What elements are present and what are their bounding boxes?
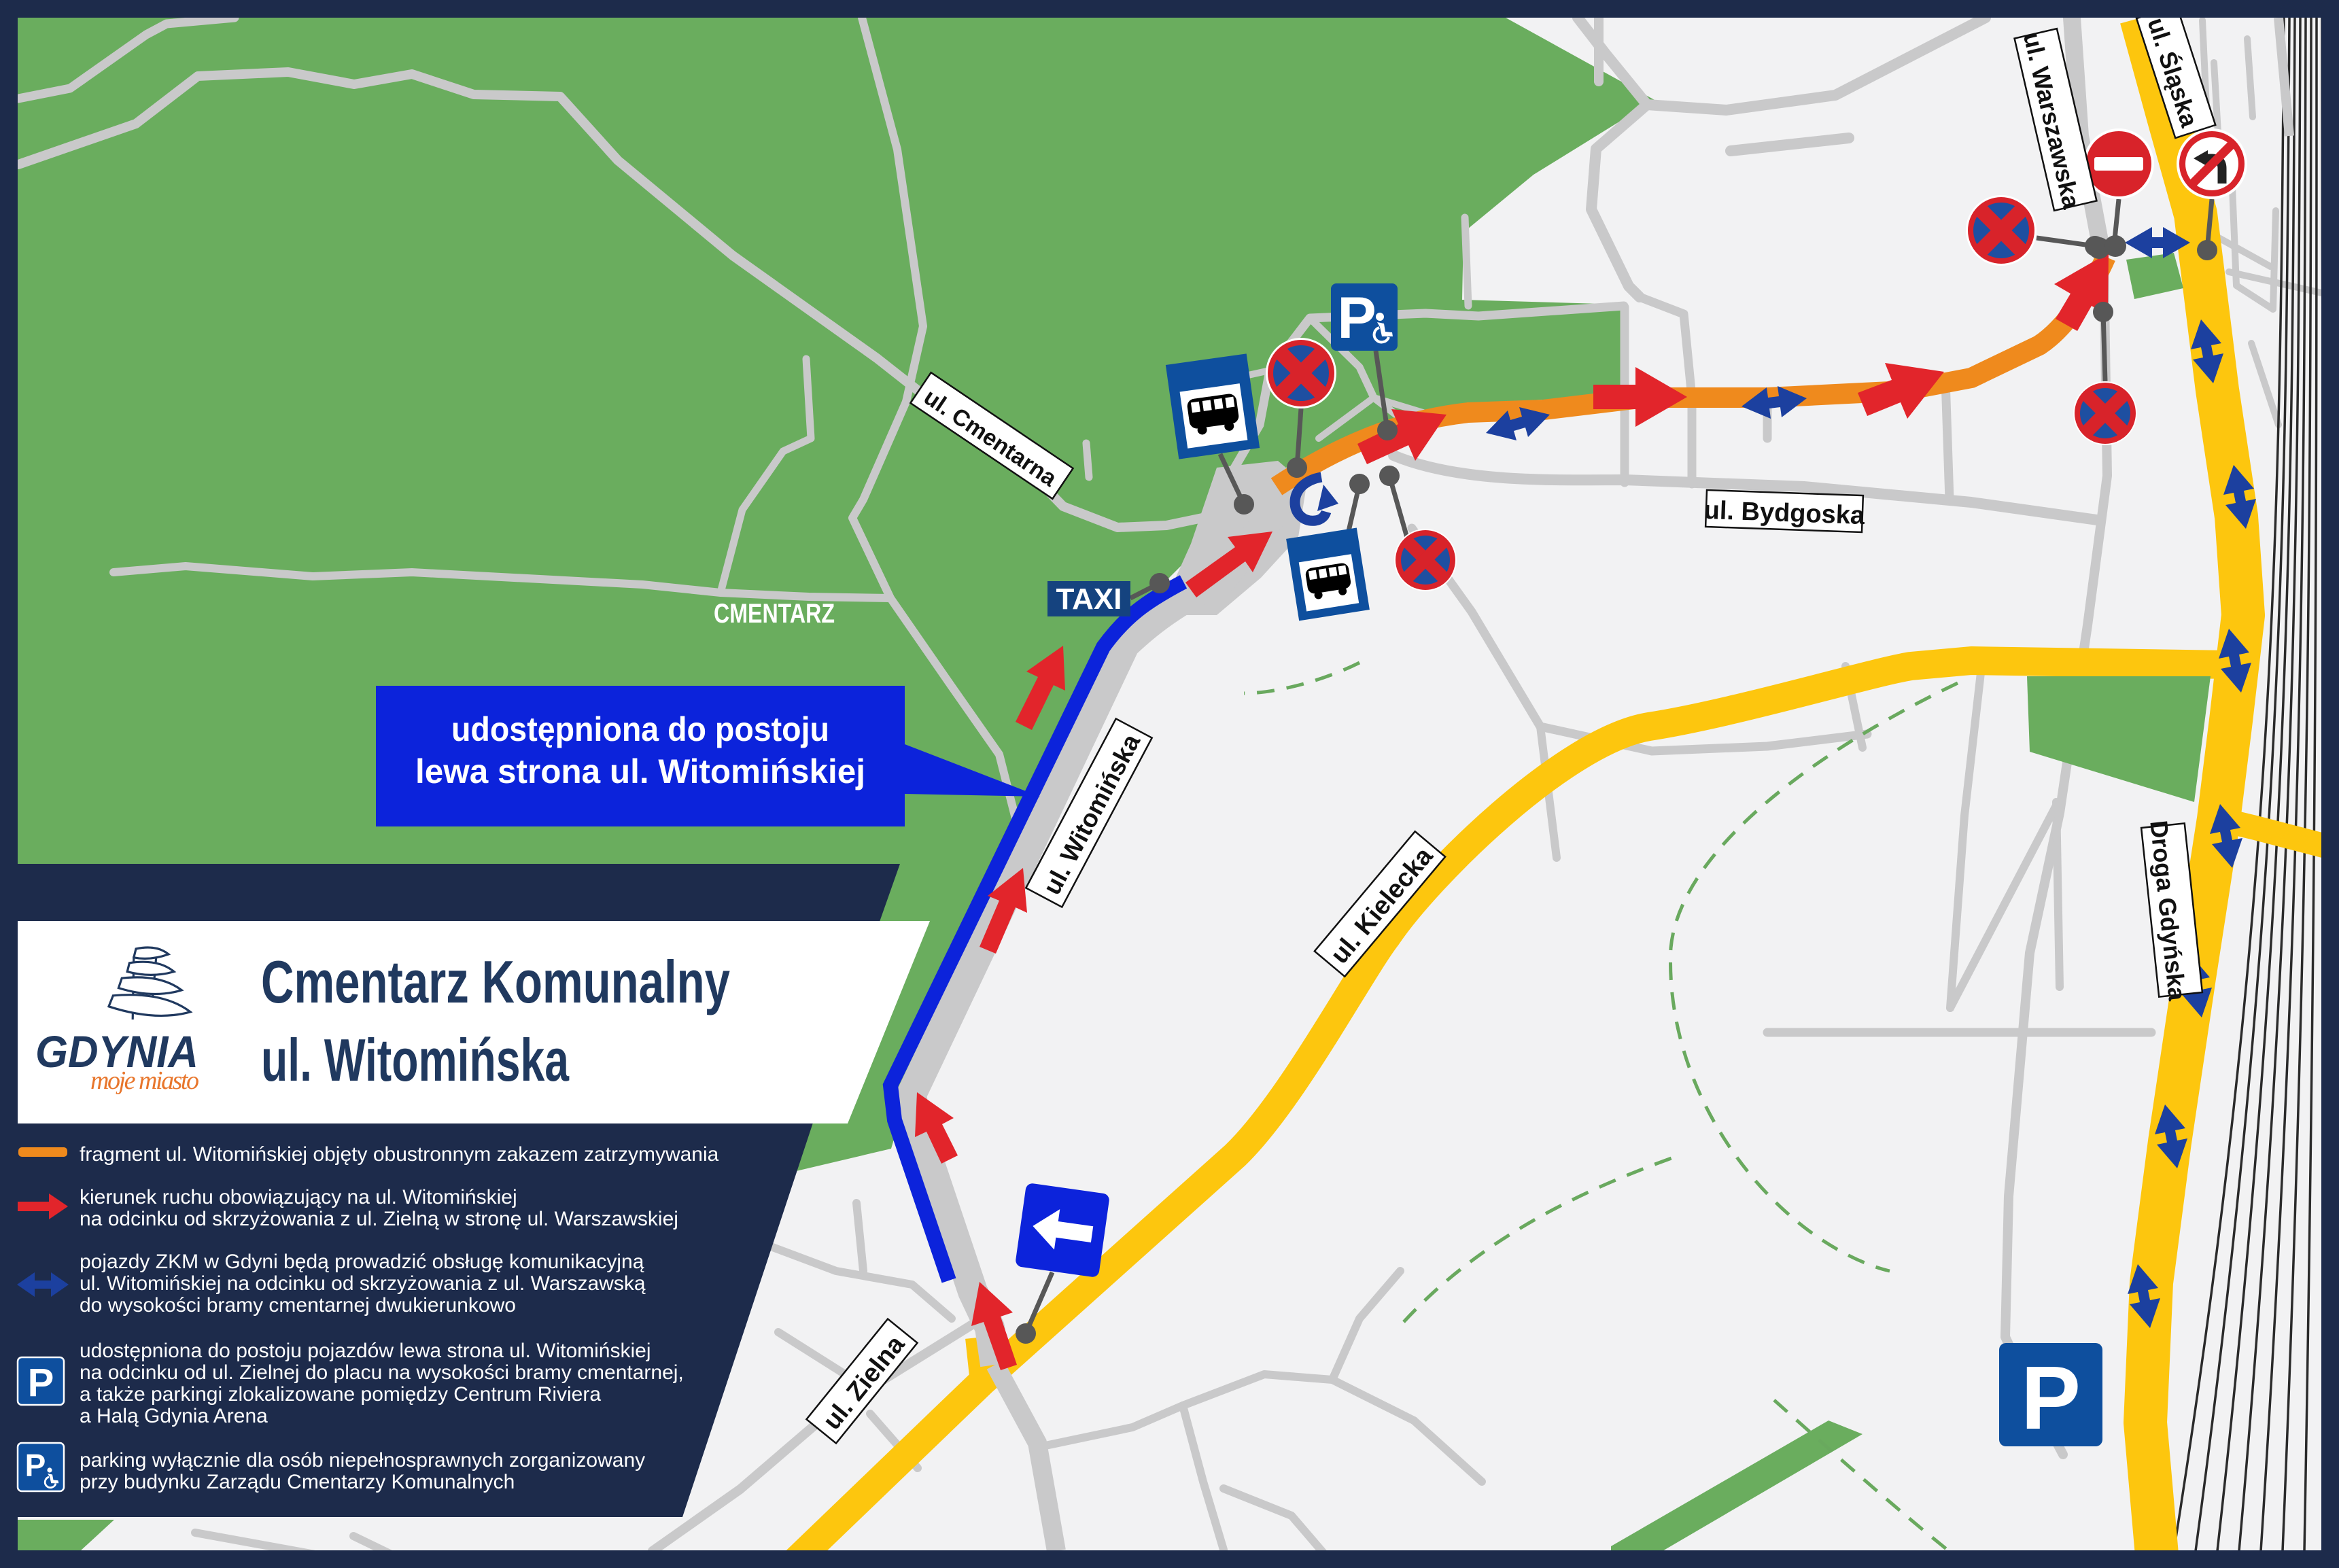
svg-text:P: P — [2021, 1348, 2081, 1448]
svg-text:ul. Bydgoska: ul. Bydgoska — [1703, 496, 1866, 530]
svg-text:TAXI: TAXI — [1056, 582, 1122, 616]
svg-text:fragment ul. Witomińskiej obję: fragment ul. Witomińskiej objęty obustro… — [80, 1143, 719, 1166]
svg-text:udostępniona do postoju: udostępniona do postoju — [451, 710, 829, 748]
svg-text:ul. Witomińska: ul. Witomińska — [261, 1026, 570, 1094]
svg-text:P: P — [25, 1448, 46, 1483]
svg-text:moje miasto: moje miasto — [90, 1066, 199, 1095]
svg-text:lewa strona ul. Witomińskiej: lewa strona ul. Witomińskiej — [415, 752, 865, 790]
svg-text:P: P — [1337, 285, 1376, 351]
svg-text:P: P — [28, 1361, 54, 1405]
svg-text:CMENTARZ: CMENTARZ — [714, 599, 835, 629]
svg-text:Cmentarz Komunalny: Cmentarz Komunalny — [261, 948, 730, 1015]
